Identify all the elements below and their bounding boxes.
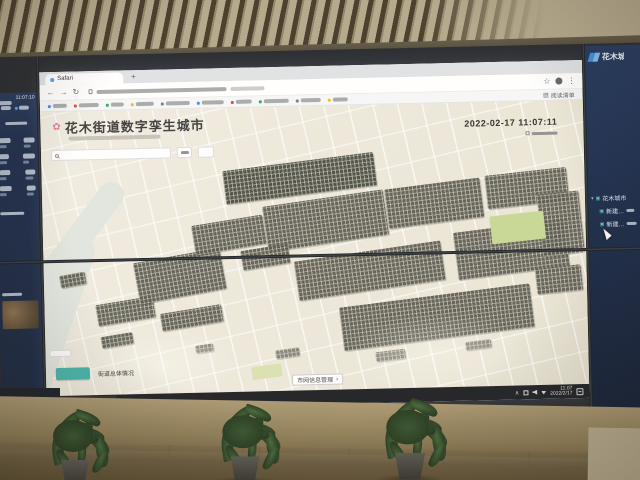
brand-row: 花木城市 — [585, 45, 640, 63]
blurred-text — [0, 212, 24, 216]
river — [40, 177, 129, 313]
blurred-subtitle — [69, 135, 161, 141]
blurred-url — [96, 87, 226, 94]
profile-avatar[interactable] — [555, 77, 562, 84]
stat-row — [0, 150, 38, 167]
center-screen: Safari + ← → ↻ ☆ ⋮ — [39, 60, 590, 410]
building-cluster — [100, 332, 134, 349]
app-title-block: ✿ 花木街道数字孪生城市 — [52, 115, 205, 137]
search-icon — [55, 153, 59, 157]
new-tab-button[interactable]: + — [131, 71, 136, 83]
tab-favicon — [50, 77, 54, 81]
street-overview-row: 街道总体情况 — [56, 366, 134, 380]
bookmark-item[interactable] — [197, 100, 224, 105]
timestamp-sub-label[interactable] — [526, 131, 558, 136]
bookmark-item[interactable] — [74, 103, 99, 108]
chevron-right-icon: › — [336, 376, 338, 382]
brand-text: 花木城市 — [602, 51, 624, 62]
building-cluster — [195, 343, 214, 354]
network-icon[interactable] — [523, 390, 528, 395]
building-cluster — [384, 177, 484, 229]
caret-down-icon[interactable]: ▾ — [591, 195, 594, 201]
dashboard-photo-thumbnail — [2, 300, 39, 329]
grid-management-button[interactable]: 市网信息管理 › — [292, 374, 343, 386]
brand-logo-icon — [593, 53, 601, 62]
blurred-url — [230, 86, 264, 91]
tab-title: Safari — [57, 74, 73, 85]
building-cluster — [375, 349, 406, 363]
bookmark-item[interactable] — [296, 98, 321, 103]
back-icon[interactable]: ← — [46, 84, 54, 100]
potted-plant — [194, 399, 297, 480]
reload-icon[interactable]: ↻ — [72, 84, 79, 100]
left-clock: 11:07:10 — [15, 94, 34, 100]
taskbar-clock[interactable]: 11:07 2022/2/17 — [550, 386, 572, 397]
stat-row — [0, 166, 39, 183]
tray-chevron-icon[interactable]: ∧ — [515, 389, 520, 396]
system-tray: ∧ 11:07 2022/2/17 — [515, 386, 584, 398]
building-cluster — [535, 264, 584, 295]
tree-item[interactable]: ▣ 新建… — [589, 217, 640, 231]
forward-icon[interactable]: → — [59, 84, 67, 100]
taskbar-date: 2022/2/17 — [550, 390, 572, 397]
side-wall — [587, 427, 640, 480]
search-input[interactable] — [51, 147, 171, 161]
tree-item-root[interactable]: ▾ ▣ 花木城市 — [588, 191, 640, 205]
badge — [15, 106, 29, 110]
wifi-icon[interactable] — [541, 389, 546, 394]
building-cluster — [294, 240, 446, 301]
grid-management-label: 市网信息管理 — [297, 375, 333, 385]
map-overlay-pill[interactable] — [49, 350, 71, 357]
potted-plant — [356, 393, 464, 480]
grid-glyph-icon — [526, 131, 530, 135]
layer-icon: ▣ — [600, 221, 605, 227]
building-cluster — [275, 347, 300, 359]
volume-icon[interactable] — [532, 390, 537, 395]
building-cluster — [160, 304, 224, 332]
street-overview-label: 街道总体情况 — [98, 368, 134, 378]
potted-plant — [25, 404, 125, 480]
tree-root-label: 花木城市 — [602, 193, 626, 203]
blurred-text — [532, 131, 558, 135]
search-button[interactable] — [177, 147, 192, 158]
layer-tree: ▾ ▣ 花木城市 ▣ 新建… ▣ 新建… — [588, 191, 640, 231]
left-dashboard-header: 11:07:10 — [0, 92, 37, 103]
bookmark-item[interactable] — [231, 100, 252, 104]
map-tool-box[interactable] — [198, 146, 214, 157]
reading-list-label: 阅读清单 — [551, 90, 575, 100]
layer-icon: ▣ — [596, 195, 601, 201]
bookmark-item[interactable] — [48, 104, 67, 108]
bookmark-item[interactable] — [106, 102, 124, 106]
bookmark-item[interactable] — [161, 101, 190, 106]
reading-list-icon: ▤ — [543, 91, 549, 98]
stat-row — [0, 134, 38, 151]
badge — [0, 106, 11, 110]
blurred-caption — [2, 293, 22, 296]
map-search-row — [51, 146, 214, 161]
menu-icon[interactable]: ⋮ — [567, 73, 575, 89]
layer-icon: ▣ — [599, 208, 604, 214]
blurred-section-title — [5, 122, 27, 125]
blurred-text — [0, 101, 12, 105]
stat-row — [0, 182, 39, 199]
bookmark-item[interactable] — [259, 99, 289, 104]
video-wall: 11:07:10 — [0, 43, 640, 443]
building-cluster — [339, 283, 535, 351]
flower-icon: ✿ — [52, 120, 61, 134]
right-layer-screen: 花木城市 ▾ ▣ 花木城市 ▣ 新建… ▣ 新建… — [585, 45, 640, 426]
map-timestamp: 2022-02-17 11:07:11 — [464, 117, 557, 129]
bookmark-item[interactable] — [328, 97, 348, 101]
page-title: 花木街道数字孪生城市 — [64, 115, 204, 137]
action-center-icon[interactable] — [576, 388, 583, 395]
star-icon[interactable]: ☆ — [543, 73, 551, 89]
building-cluster — [465, 339, 492, 351]
lock-icon — [88, 89, 92, 94]
green-field — [489, 211, 546, 245]
control-room-photo: 11:07:10 — [0, 0, 640, 480]
tree-item-label: 新建… — [606, 206, 624, 215]
building-cluster — [262, 189, 389, 252]
green-field — [251, 363, 282, 380]
toolbar-actions: ☆ ⋮ — [543, 73, 576, 90]
plant-pot — [59, 460, 91, 480]
tree-item[interactable]: ▣ 新建… — [588, 204, 640, 218]
browser-window: Safari + ← → ↻ ☆ ⋮ — [39, 60, 589, 396]
digital-twin-map[interactable]: ✿ 花木街道数字孪生城市 2022-02-17 11:07:11 — [40, 100, 589, 396]
bookmark-item[interactable] — [131, 102, 154, 107]
reading-list-button[interactable]: ▤ 阅读清单 — [543, 90, 575, 100]
street-overview-button[interactable] — [56, 367, 90, 380]
